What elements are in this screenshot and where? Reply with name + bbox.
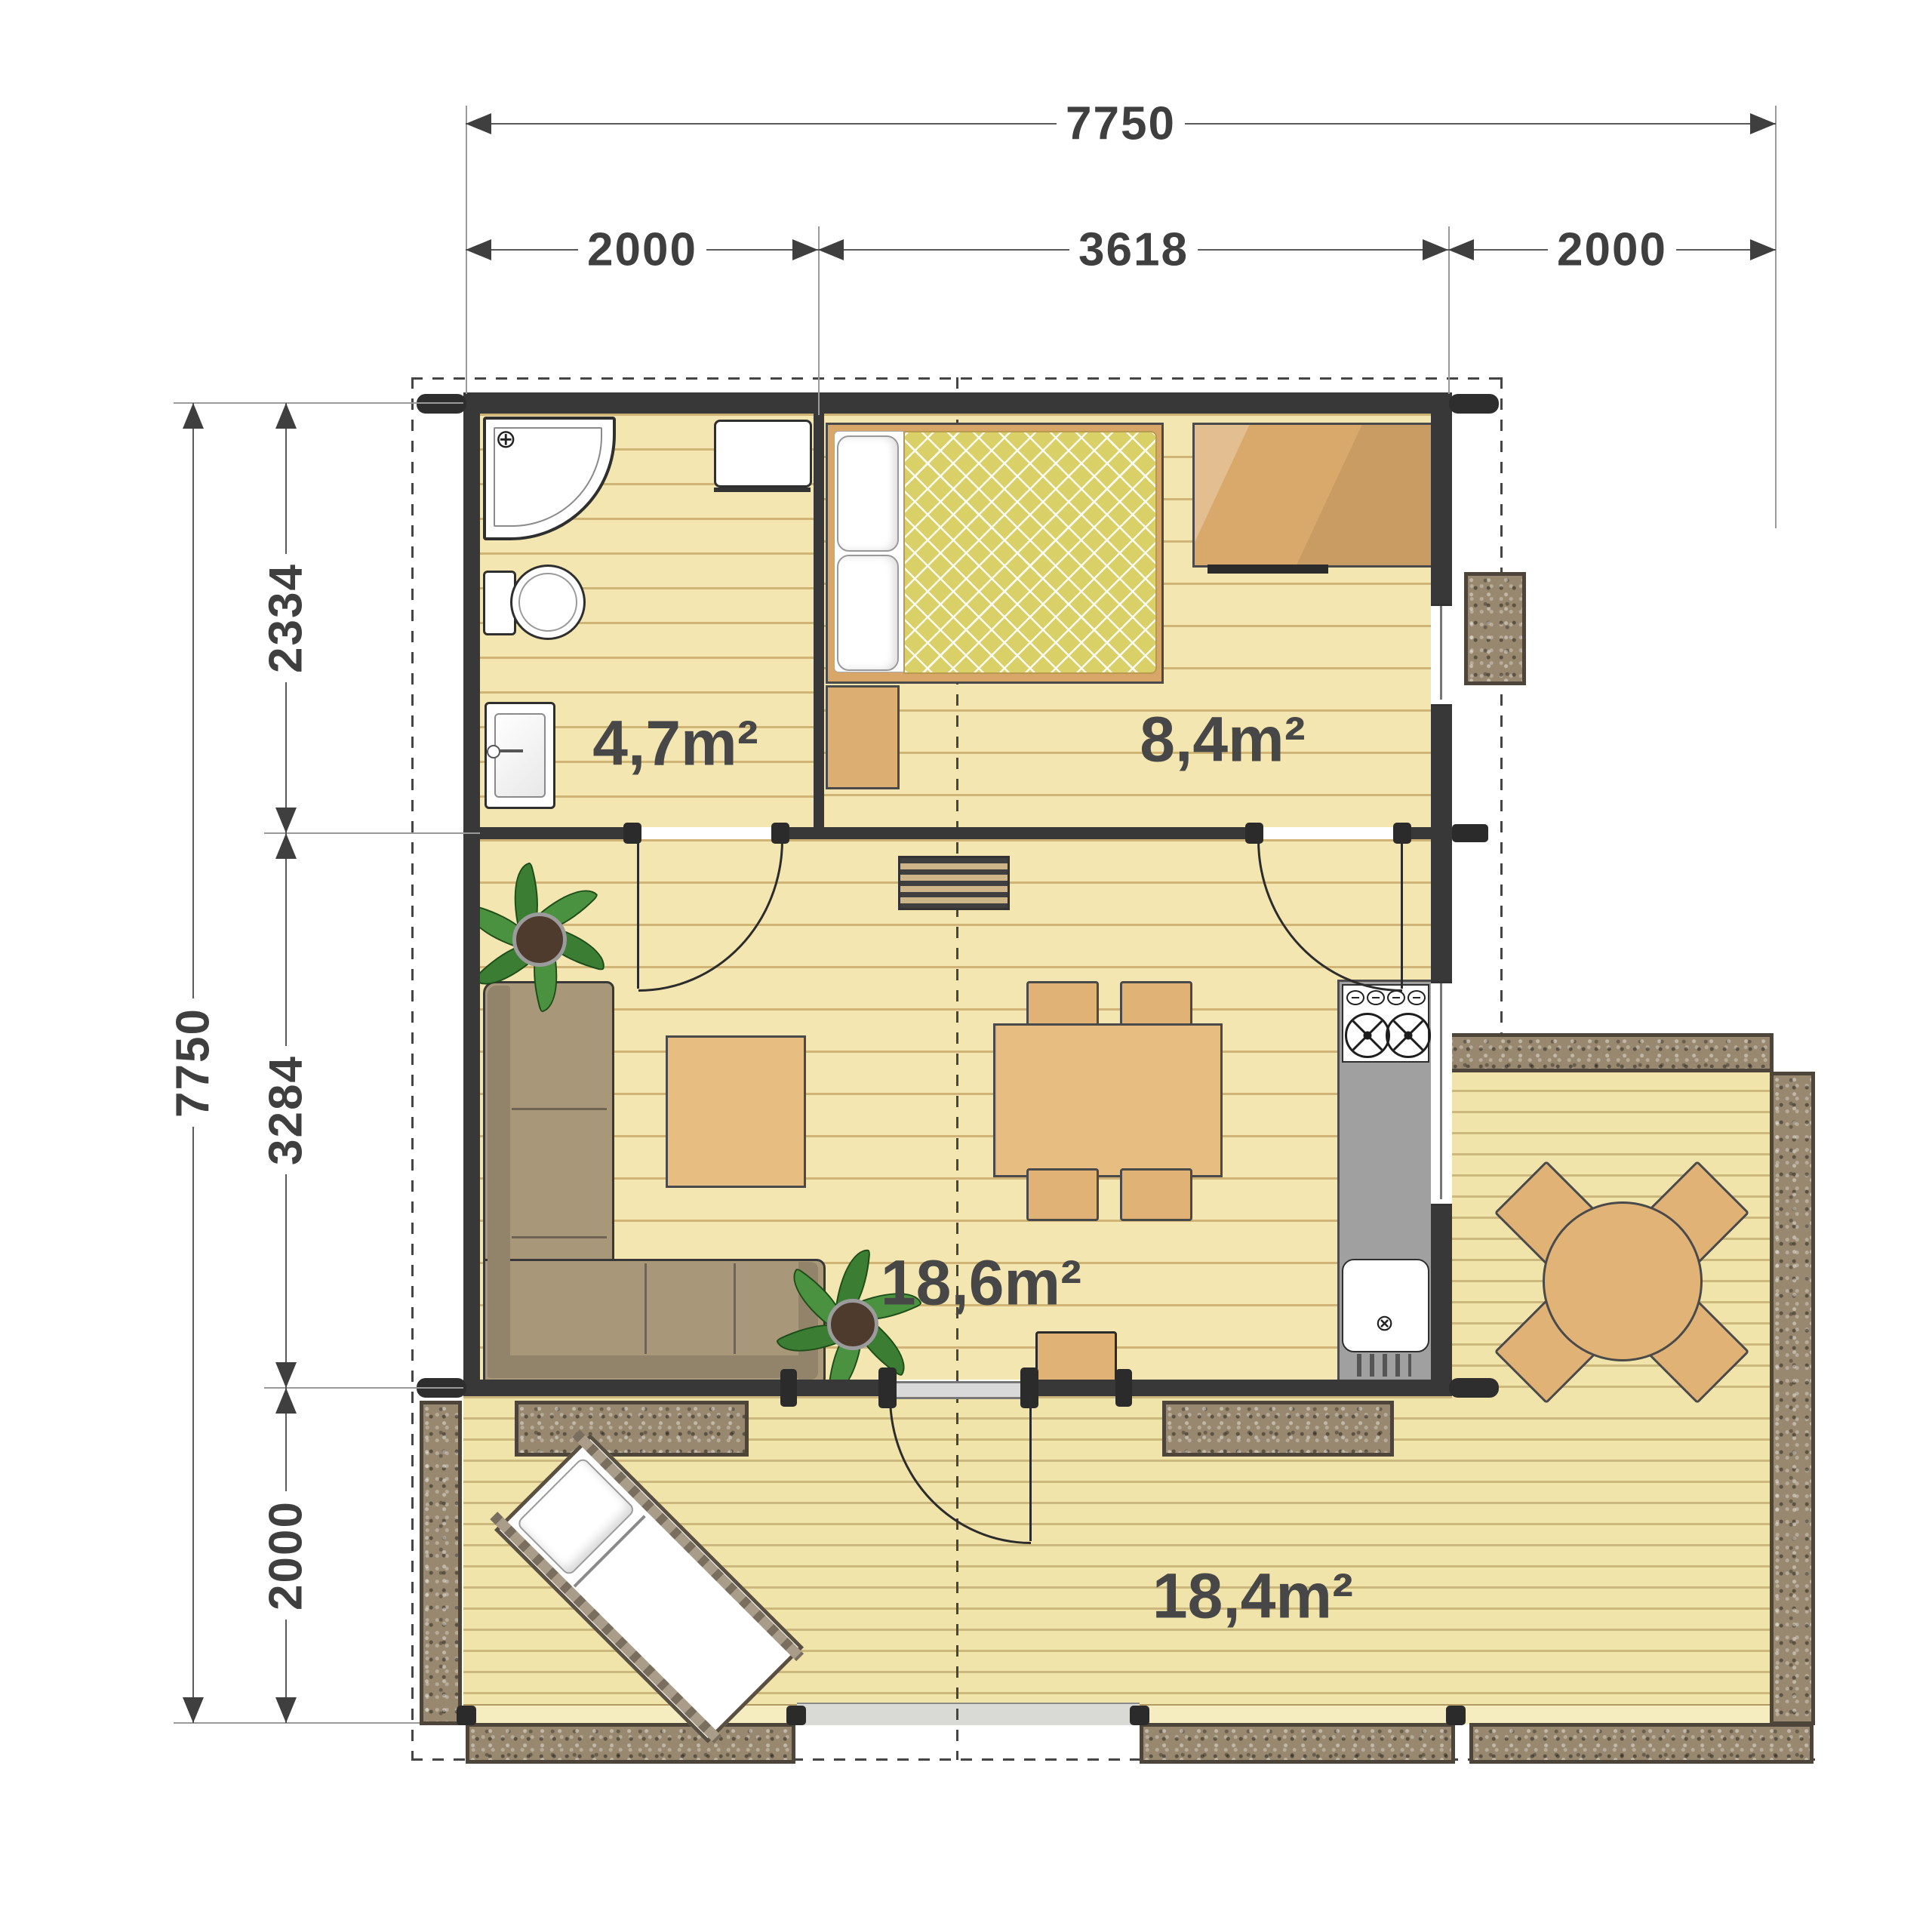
deck-entry-path xyxy=(797,1703,1140,1725)
jamb-post xyxy=(1115,1369,1132,1407)
planter-right-terrace-side xyxy=(1770,1072,1815,1725)
dim-arrow xyxy=(275,808,297,833)
dim-top-seg2: 3618 xyxy=(1069,223,1198,277)
bedroom-door-swing xyxy=(1257,839,1402,992)
radiator-vent xyxy=(898,856,1010,910)
deck-post xyxy=(786,1706,806,1725)
dim-left-total: 7750 xyxy=(167,998,220,1127)
living-window xyxy=(1431,981,1452,1206)
plant-pot xyxy=(827,1299,878,1350)
kitchen-drainboard xyxy=(1357,1354,1411,1377)
terrace-area-label: 18,4m² xyxy=(1152,1560,1353,1633)
wall-east xyxy=(1431,392,1452,604)
nightstand xyxy=(826,685,900,789)
wall-east xyxy=(1431,702,1452,981)
dim-arrow xyxy=(1750,113,1776,134)
dining-chair xyxy=(1120,1168,1192,1221)
potted-plant xyxy=(464,864,608,1008)
window-planter-box xyxy=(1464,572,1526,685)
planter-under-wall-right xyxy=(1162,1401,1394,1457)
bathroom-sink xyxy=(485,702,555,809)
drain-icon: ⊗ xyxy=(1375,1310,1394,1337)
dim-arrow xyxy=(275,1388,297,1414)
bathroom-door-swing xyxy=(638,839,783,992)
partition-bathroom-bedroom xyxy=(814,414,824,827)
stove-knob-icon xyxy=(1346,990,1364,1005)
extension-line xyxy=(174,1722,420,1724)
sofa-cushion-seam xyxy=(512,1236,607,1238)
sofa-backrest xyxy=(491,1355,815,1378)
plant-pot xyxy=(512,912,567,967)
washing-machine xyxy=(714,420,812,488)
bathroom-area-label: 4,7m² xyxy=(592,707,758,780)
stove-burner-icon xyxy=(1345,1013,1390,1058)
stove-burner-icon xyxy=(1386,1013,1431,1058)
log-end-cap xyxy=(1449,1378,1499,1398)
wardrobe xyxy=(1192,423,1435,568)
bedroom-area-label: 8,4m² xyxy=(1140,703,1305,777)
dim-arrow xyxy=(275,1362,297,1388)
planter-under-wall-left xyxy=(515,1401,749,1457)
bed-pillow xyxy=(837,555,899,671)
planter-bottom-left xyxy=(466,1723,795,1764)
patio-door-swing xyxy=(889,1396,1031,1544)
log-end-partition xyxy=(1452,824,1488,842)
wall-north xyxy=(463,392,1452,414)
wall-south xyxy=(1029,1380,1452,1396)
dim-top-seg1: 2000 xyxy=(578,223,706,277)
planter-left-column xyxy=(420,1401,462,1725)
toilet-bowl xyxy=(510,565,586,640)
dim-arrow xyxy=(183,1697,204,1723)
log-end-cap xyxy=(1449,394,1499,414)
roof-outline-left xyxy=(411,377,414,1760)
stove-knob-icon xyxy=(1407,990,1426,1005)
dim-arrow xyxy=(183,403,204,429)
dim-top-seg3: 2000 xyxy=(1548,223,1676,277)
washing-machine-shelf xyxy=(714,488,811,492)
jamb-post xyxy=(780,1369,797,1407)
dim-arrow xyxy=(1448,239,1474,260)
coffee-table xyxy=(666,1035,806,1188)
dim-arrow xyxy=(792,239,818,260)
wall-east xyxy=(1431,1201,1452,1396)
wall-south xyxy=(463,1380,888,1396)
bedroom-window xyxy=(1431,604,1452,706)
living-area-label: 18,6m² xyxy=(881,1247,1081,1320)
sofa-cushion-seam xyxy=(645,1263,647,1354)
toilet-seat xyxy=(518,573,577,632)
double-bed xyxy=(826,423,1164,684)
dim-left-seg2: 3284 xyxy=(260,1046,313,1174)
extension-line xyxy=(174,402,463,404)
bed-pillow xyxy=(837,435,899,552)
kitchen-sink: ⊗ xyxy=(1342,1259,1429,1352)
terrace-round-table xyxy=(1543,1201,1703,1361)
wall-west xyxy=(463,392,480,1396)
planter-right-terrace-top xyxy=(1444,1033,1774,1072)
dim-top-total: 7750 xyxy=(1057,97,1185,151)
dim-arrow xyxy=(1423,239,1448,260)
faucet-icon: ⊕ xyxy=(495,424,517,454)
log-end-cap xyxy=(417,394,466,414)
extension-line xyxy=(1775,106,1777,528)
sofa-backrest xyxy=(488,986,510,1378)
window-pane-line xyxy=(1440,983,1442,1199)
stove xyxy=(1342,984,1429,1063)
sofa-cushion-seam xyxy=(512,1108,607,1110)
deck-post xyxy=(1130,1706,1149,1725)
wardrobe-door-track xyxy=(1207,565,1328,574)
dim-left-seg1: 2334 xyxy=(260,554,313,682)
dining-table xyxy=(993,1023,1223,1177)
dim-arrow xyxy=(466,113,491,134)
planter-bottom-right xyxy=(1469,1723,1814,1764)
bed-quilt xyxy=(903,431,1157,674)
dim-arrow xyxy=(818,239,844,260)
stove-knob-icon xyxy=(1367,990,1385,1005)
sink-basin xyxy=(494,713,546,798)
planter-bottom-middle xyxy=(1140,1723,1455,1764)
window-pane-line xyxy=(1440,606,1442,700)
dining-chair xyxy=(1026,1168,1099,1221)
sofa-cushion-seam xyxy=(734,1263,736,1354)
stove-knob-icon xyxy=(1387,990,1405,1005)
sink-tap-knob xyxy=(487,745,500,758)
deck-post xyxy=(457,1706,476,1725)
stool xyxy=(1035,1331,1117,1384)
dim-arrow xyxy=(466,239,491,260)
partition-horizontal xyxy=(780,827,1254,839)
dim-arrow xyxy=(275,403,297,429)
dim-arrow xyxy=(275,1697,297,1723)
dim-arrow xyxy=(275,833,297,859)
dim-left-seg3: 2000 xyxy=(260,1491,313,1620)
dim-arrow xyxy=(1750,239,1776,260)
deck-post xyxy=(1446,1706,1466,1725)
partition-horizontal xyxy=(480,827,632,839)
